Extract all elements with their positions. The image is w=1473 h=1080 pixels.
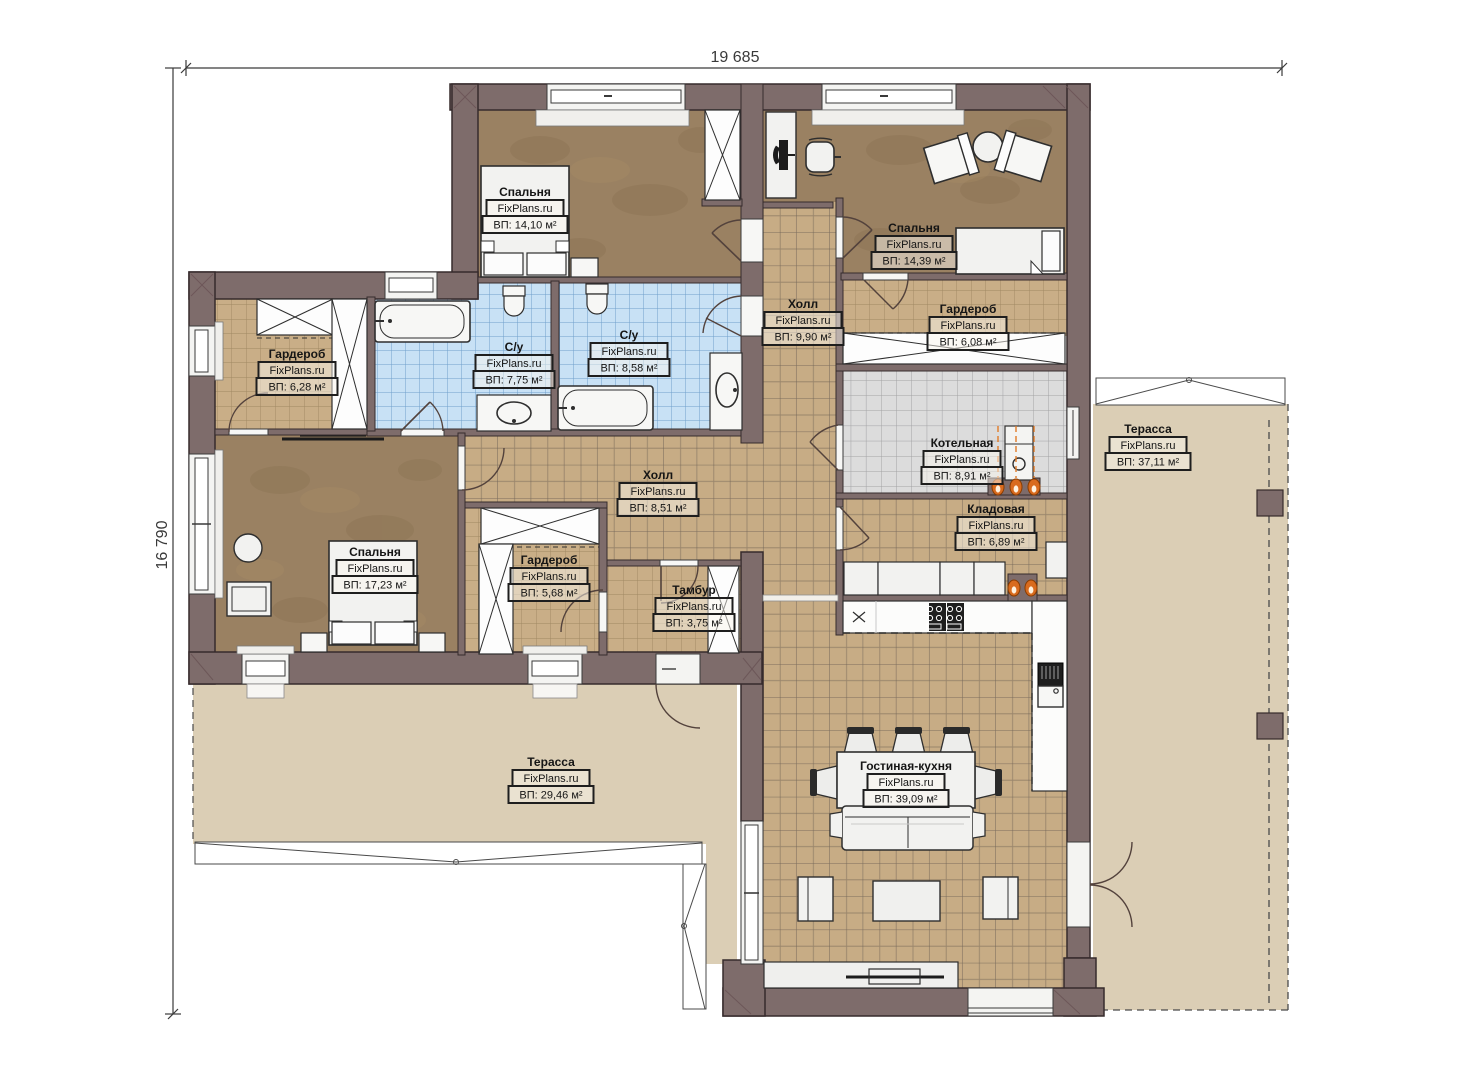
svg-text:Кладовая: Кладовая: [967, 502, 1024, 516]
svg-text:Спальня: Спальня: [499, 185, 551, 199]
svg-text:FixPlans.ru: FixPlans.ru: [601, 346, 656, 358]
svg-text:ВП: 6,28 м²: ВП: 6,28 м²: [268, 382, 325, 394]
svg-text:Терасса: Терасса: [1124, 422, 1172, 436]
svg-text:ВП: 14,10 м²: ВП: 14,10 м²: [493, 220, 557, 232]
svg-text:FixPlans.ru: FixPlans.ru: [347, 563, 402, 575]
svg-text:ВП: 6,08 м²: ВП: 6,08 м²: [939, 337, 996, 349]
svg-text:Терасса: Терасса: [527, 755, 575, 769]
svg-text:Гардероб: Гардероб: [940, 302, 997, 316]
svg-text:FixPlans.ru: FixPlans.ru: [521, 571, 576, 583]
svg-text:С/у: С/у: [505, 340, 524, 354]
svg-text:FixPlans.ru: FixPlans.ru: [886, 239, 941, 251]
svg-text:FixPlans.ru: FixPlans.ru: [523, 773, 578, 785]
svg-text:С/у: С/у: [620, 328, 639, 342]
svg-text:Тамбур: Тамбур: [672, 583, 716, 597]
svg-text:ВП: 3,75 м²: ВП: 3,75 м²: [665, 618, 722, 630]
svg-text:16 790: 16 790: [154, 520, 171, 569]
svg-text:FixPlans.ru: FixPlans.ru: [940, 320, 995, 332]
svg-text:ВП: 8,58 м²: ВП: 8,58 м²: [600, 363, 657, 375]
svg-text:FixPlans.ru: FixPlans.ru: [934, 454, 989, 466]
svg-text:Холл: Холл: [643, 468, 673, 482]
svg-text:Гардероб: Гардероб: [269, 347, 326, 361]
svg-text:FixPlans.ru: FixPlans.ru: [666, 601, 721, 613]
svg-text:ВП: 14,39 м²: ВП: 14,39 м²: [882, 256, 946, 268]
svg-text:Котельная: Котельная: [931, 436, 994, 450]
svg-text:19 685: 19 685: [711, 49, 760, 66]
svg-text:ВП: 8,91 м²: ВП: 8,91 м²: [933, 471, 990, 483]
svg-text:FixPlans.ru: FixPlans.ru: [269, 365, 324, 377]
svg-text:ВП: 8,51 м²: ВП: 8,51 м²: [629, 503, 686, 515]
svg-text:ВП: 29,46 м²: ВП: 29,46 м²: [519, 790, 583, 802]
svg-text:FixPlans.ru: FixPlans.ru: [968, 520, 1023, 532]
svg-text:FixPlans.ru: FixPlans.ru: [497, 203, 552, 215]
svg-text:ВП: 39,09 м²: ВП: 39,09 м²: [874, 794, 938, 806]
svg-text:Спальня: Спальня: [888, 221, 940, 235]
svg-text:Холл: Холл: [788, 297, 818, 311]
svg-text:FixPlans.ru: FixPlans.ru: [878, 777, 933, 789]
svg-text:ВП: 7,75 м²: ВП: 7,75 м²: [485, 375, 542, 387]
svg-text:Спальня: Спальня: [349, 545, 401, 559]
svg-text:ВП: 5,68 м²: ВП: 5,68 м²: [520, 588, 577, 600]
svg-text:Гостиная-кухня: Гостиная-кухня: [860, 759, 952, 773]
svg-text:FixPlans.ru: FixPlans.ru: [1120, 440, 1175, 452]
svg-text:ВП: 17,23 м²: ВП: 17,23 м²: [343, 580, 407, 592]
svg-text:ВП: 9,90 м²: ВП: 9,90 м²: [774, 332, 831, 344]
svg-text:FixPlans.ru: FixPlans.ru: [775, 315, 830, 327]
svg-text:Гардероб: Гардероб: [521, 553, 578, 567]
svg-text:ВП: 37,11 м²: ВП: 37,11 м²: [1117, 457, 1180, 469]
svg-text:FixPlans.ru: FixPlans.ru: [486, 358, 541, 370]
svg-text:ВП: 6,89 м²: ВП: 6,89 м²: [967, 537, 1024, 549]
svg-text:FixPlans.ru: FixPlans.ru: [630, 486, 685, 498]
